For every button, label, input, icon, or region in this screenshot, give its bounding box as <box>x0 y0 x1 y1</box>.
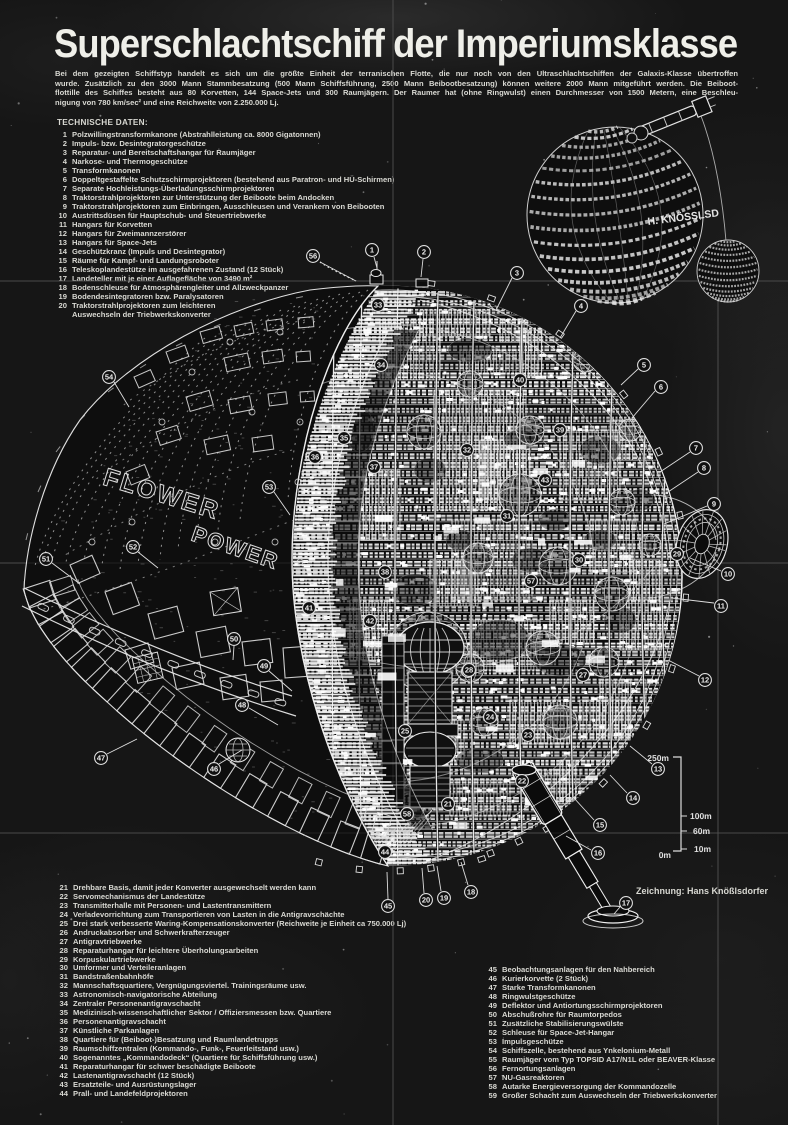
svg-text:43: 43 <box>541 476 549 485</box>
svg-text:48: 48 <box>238 701 246 710</box>
svg-text:51: 51 <box>42 555 50 564</box>
svg-text:6: 6 <box>659 383 663 392</box>
svg-text:41: 41 <box>305 604 313 613</box>
svg-text:50: 50 <box>230 635 238 644</box>
svg-text:46: 46 <box>210 765 218 774</box>
svg-text:19: 19 <box>440 894 448 903</box>
svg-text:52: 52 <box>129 543 137 552</box>
svg-text:36: 36 <box>311 453 319 462</box>
svg-text:58: 58 <box>403 810 411 819</box>
svg-text:30: 30 <box>575 556 583 565</box>
svg-text:7: 7 <box>694 444 698 453</box>
svg-text:33: 33 <box>374 301 382 310</box>
svg-text:24: 24 <box>486 713 495 722</box>
svg-text:32: 32 <box>463 446 471 455</box>
svg-text:49: 49 <box>260 662 268 671</box>
svg-text:25: 25 <box>401 727 409 736</box>
svg-text:53: 53 <box>265 483 273 492</box>
svg-text:9: 9 <box>712 500 716 509</box>
svg-text:11: 11 <box>717 602 725 611</box>
svg-text:0m: 0m <box>659 850 672 860</box>
svg-text:10m: 10m <box>694 844 711 854</box>
svg-text:47: 47 <box>97 754 105 763</box>
svg-text:31: 31 <box>503 512 511 521</box>
svg-text:29: 29 <box>673 550 681 559</box>
svg-text:27: 27 <box>579 671 587 680</box>
svg-text:38: 38 <box>381 568 389 577</box>
svg-text:42: 42 <box>366 617 374 626</box>
svg-text:14: 14 <box>629 794 638 803</box>
svg-text:8: 8 <box>702 464 706 473</box>
svg-text:15: 15 <box>596 821 604 830</box>
svg-text:54: 54 <box>105 373 114 382</box>
svg-text:23: 23 <box>524 731 532 740</box>
svg-text:28: 28 <box>465 666 473 675</box>
svg-text:10: 10 <box>724 570 732 579</box>
svg-text:12: 12 <box>701 676 709 685</box>
svg-text:34: 34 <box>377 361 386 370</box>
svg-text:21: 21 <box>444 800 452 809</box>
svg-text:18: 18 <box>467 888 475 897</box>
svg-text:39: 39 <box>556 426 564 435</box>
svg-text:22: 22 <box>518 777 526 786</box>
svg-text:16: 16 <box>594 849 602 858</box>
svg-text:60m: 60m <box>693 826 710 836</box>
svg-text:17: 17 <box>622 899 630 908</box>
svg-text:45: 45 <box>384 902 392 911</box>
svg-text:44: 44 <box>381 848 390 857</box>
svg-text:100m: 100m <box>690 811 712 821</box>
svg-text:20: 20 <box>422 896 430 905</box>
svg-text:40: 40 <box>516 376 524 385</box>
svg-text:1: 1 <box>370 246 374 255</box>
svg-text:35: 35 <box>340 434 348 443</box>
svg-text:5: 5 <box>642 361 646 370</box>
svg-text:37: 37 <box>370 463 378 472</box>
svg-text:3: 3 <box>515 269 519 278</box>
svg-text:250m: 250m <box>647 753 669 763</box>
svg-text:13: 13 <box>654 765 662 774</box>
svg-text:2: 2 <box>422 248 426 257</box>
svg-text:57: 57 <box>527 577 535 586</box>
svg-text:56: 56 <box>309 252 317 261</box>
